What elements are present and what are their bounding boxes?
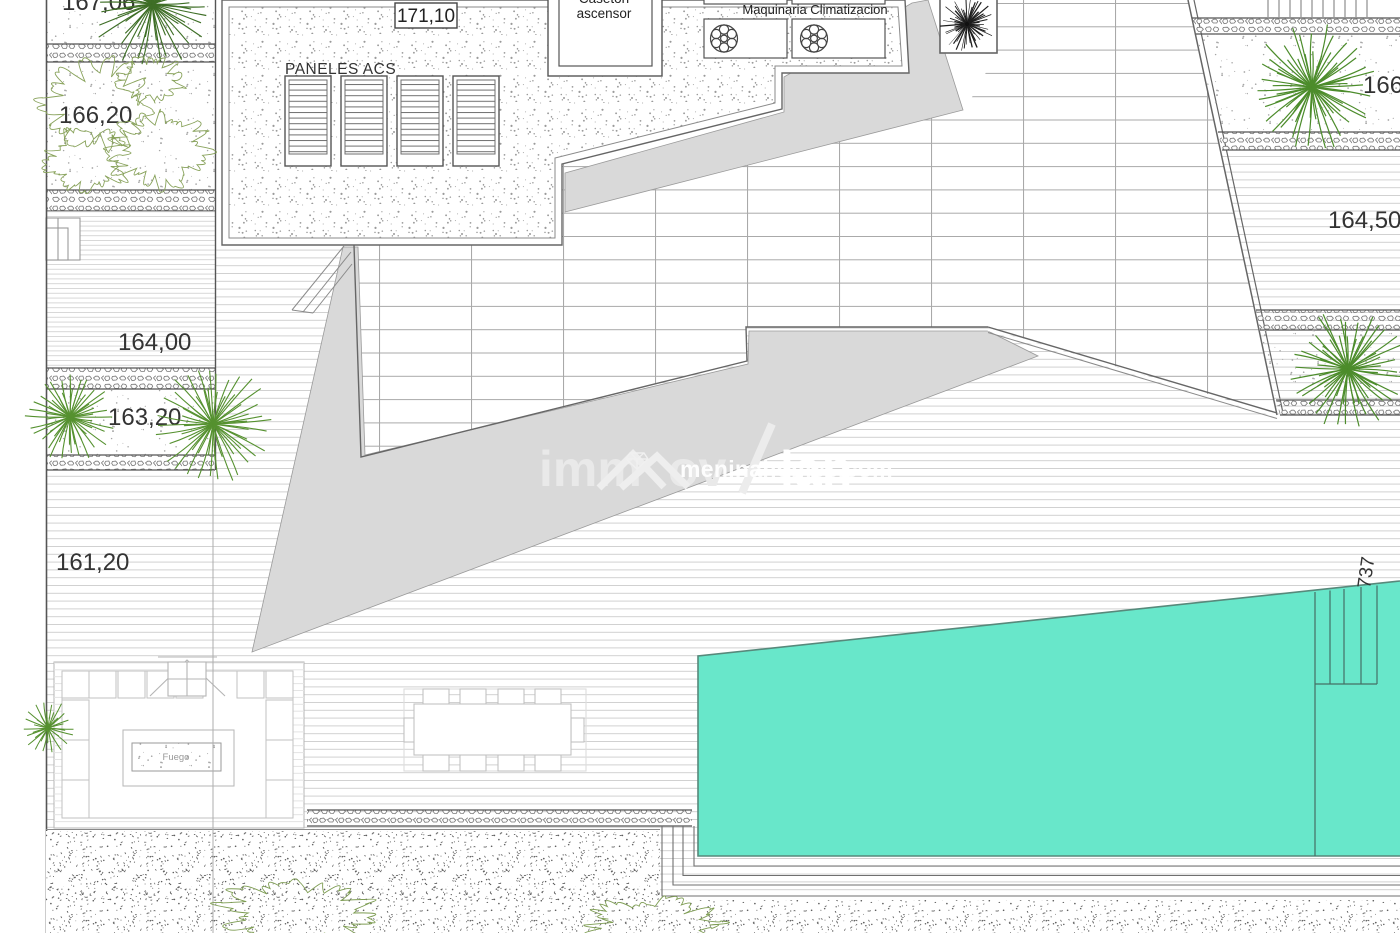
svg-text:164,00: 164,00 [118,329,191,356]
svg-text:meninahomes.com: meninahomes.com [680,456,893,482]
svg-text:171,10: 171,10 [397,6,455,27]
svg-text:161,20: 161,20 [56,549,129,576]
svg-text:163,20: 163,20 [108,404,181,431]
svg-text:166,4: 166,4 [1363,72,1400,99]
svg-text:ascensor: ascensor [577,6,632,21]
svg-text:164,50: 164,50 [1328,207,1400,234]
svg-text:737: 737 [1354,555,1379,589]
svg-text:imm: imm [539,441,642,497]
svg-text:Fuego: Fuego [163,752,190,763]
svg-text:166,20: 166,20 [59,102,132,129]
